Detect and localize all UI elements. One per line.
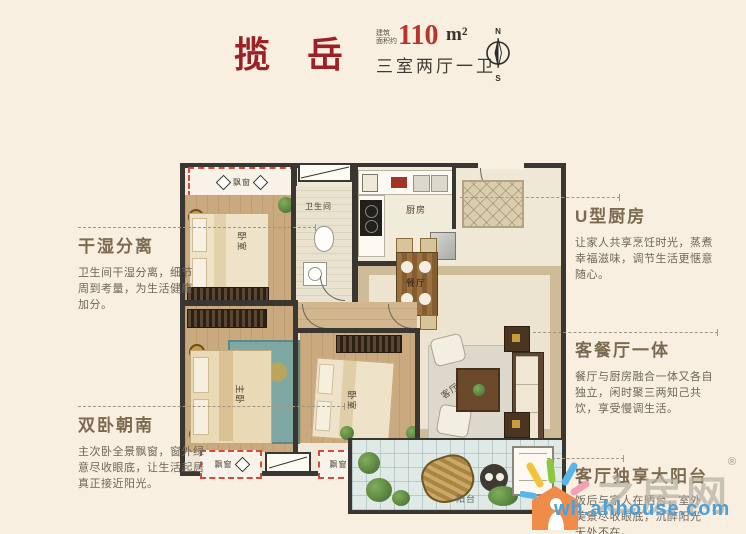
leader-tick bbox=[619, 194, 620, 201]
end-table bbox=[504, 412, 530, 438]
bay-window-top: 飘窗 bbox=[188, 167, 296, 197]
watermark-url: wh.ahhouse.com bbox=[554, 498, 730, 521]
dining-chair bbox=[396, 238, 413, 253]
master-bedroom-label: 主卧 bbox=[234, 384, 247, 404]
bathroom-vent-box bbox=[298, 163, 352, 182]
leader-tick bbox=[344, 403, 345, 410]
leader-line bbox=[78, 406, 345, 407]
watermark: 之房网 ® wh.ahhouse.com bbox=[520, 450, 746, 534]
leader-tick bbox=[717, 329, 718, 336]
annotation-dry-wet: 干湿分离 卫生间干湿分离，细节周到考量，为生活健康加分。 bbox=[78, 232, 208, 313]
annotation-title: 干湿分离 bbox=[78, 232, 208, 257]
ac-platform bbox=[265, 452, 311, 473]
watermark-registered: ® bbox=[728, 456, 736, 468]
dining-label: 餐厅 bbox=[406, 276, 426, 289]
dining-chair bbox=[420, 238, 437, 253]
wall bbox=[452, 167, 456, 229]
coffee-table bbox=[456, 368, 500, 412]
leader-line bbox=[460, 197, 620, 198]
annotation-body: 让家人共享烹饪时光，蒸煮幸福滋味，调节生活更惬意随心。 bbox=[575, 235, 713, 283]
annotation-body: 卫生间干湿分离，细节周到考量，为生活健康加分。 bbox=[78, 265, 196, 313]
bedroom-top-label: 卧室 bbox=[236, 231, 249, 251]
annotation-title: 双卧朝南 bbox=[78, 411, 218, 436]
leader-line bbox=[78, 227, 316, 228]
wall bbox=[293, 300, 298, 476]
balcony-label: 阳台 bbox=[456, 492, 476, 505]
annotation-south-bedrooms: 双卧朝南 主次卧全景飘窗，窗外绿意尽收眼底，让生活起居真正接近阳光。 bbox=[78, 411, 218, 492]
toilet bbox=[314, 226, 334, 252]
floorplan-poster: 揽 岳 建筑 面积约 110 m² 三室两厅一卫 N S 飘窗 bbox=[0, 0, 746, 534]
stove bbox=[360, 200, 382, 236]
vent-diagonal bbox=[300, 165, 350, 180]
end-table bbox=[504, 326, 530, 352]
wardrobe bbox=[336, 335, 402, 353]
plant bbox=[366, 478, 392, 502]
leader-line bbox=[533, 332, 718, 333]
dining-chair bbox=[420, 315, 437, 330]
kitchen-counter-top bbox=[358, 170, 454, 195]
leader-tick bbox=[315, 224, 316, 231]
bathroom-label: 卫生间 bbox=[305, 201, 332, 212]
brand-logo-icon bbox=[520, 456, 590, 534]
bay-window-glyph-icon bbox=[253, 174, 269, 190]
annotation-kitchen: U型厨房 让家人共享烹饪时光，蒸煮幸福滋味，调节生活更惬意随心。 bbox=[575, 202, 725, 283]
plant bbox=[392, 490, 410, 506]
wall bbox=[415, 328, 420, 440]
annotation-title: 客餐厅一体 bbox=[575, 336, 725, 361]
plant bbox=[358, 452, 380, 474]
bay-window-top-label: 飘窗 bbox=[233, 177, 251, 188]
annotation-body: 主次卧全景飘窗，窗外绿意尽收眼底，让生活起居真正接近阳光。 bbox=[78, 444, 206, 492]
entry-tile-mat bbox=[462, 180, 524, 228]
bay-window-glyph-icon bbox=[216, 174, 232, 190]
kitchen-label: 厨房 bbox=[406, 203, 426, 216]
annotation-body: 餐厅与厨房融合一体又各自独立，闲时聚三两知己共饮，享受慢调生活。 bbox=[575, 369, 713, 417]
bay-window-glyph-icon bbox=[234, 457, 250, 473]
annotation-title: U型厨房 bbox=[575, 202, 725, 227]
bay-window-mid-label: 飘窗 bbox=[330, 459, 348, 470]
annotation-living-dining: 客餐厅一体 餐厅与厨房融合一体又各自独立，闲时聚三两知己共饮，享受慢调生活。 bbox=[575, 336, 725, 417]
bedroom-mid-label: 卧室 bbox=[346, 390, 359, 410]
